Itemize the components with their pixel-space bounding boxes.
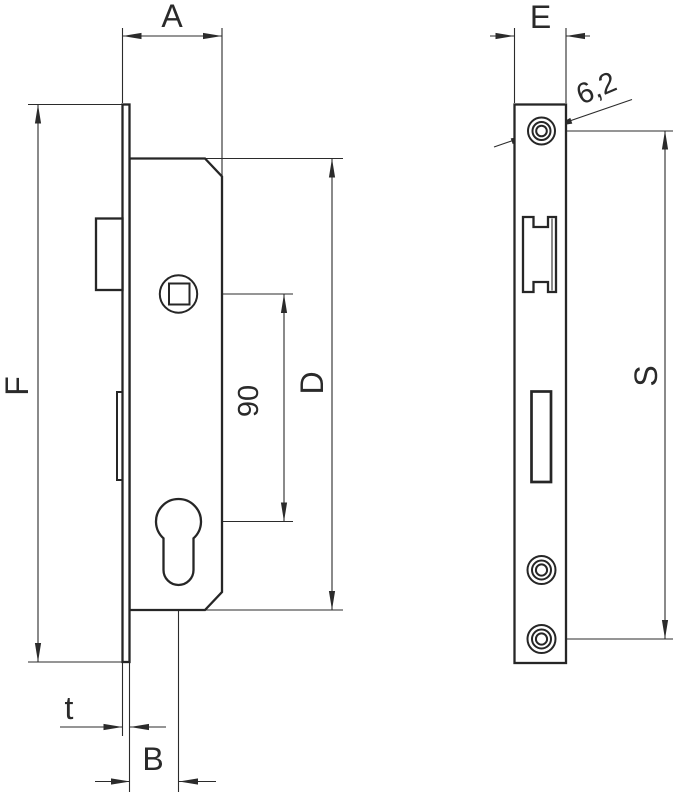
- arrow-90-bottom: [281, 503, 287, 522]
- dim-label-6-2: 6,2: [572, 66, 622, 111]
- arrow-S-top: [662, 131, 668, 150]
- dim-label-B: B: [142, 741, 163, 777]
- arrow-t-right: [130, 724, 149, 730]
- arrow-A-left: [123, 33, 142, 39]
- arrow-E-right: [566, 33, 585, 39]
- dim-label-D: D: [294, 371, 330, 394]
- arrow-t-left: [104, 724, 123, 730]
- latch-bolt-front: [523, 217, 556, 292]
- arrow-F-bottom: [35, 643, 41, 662]
- arrow-D-bottom: [329, 591, 335, 610]
- euro-cylinder-hole: [156, 499, 201, 585]
- dim-label-E: E: [530, 0, 551, 35]
- dim-label-S: S: [628, 365, 664, 386]
- latch-bolt-side: [96, 219, 123, 291]
- right-view-faceplate: [515, 105, 567, 664]
- deadbolt-slot: [532, 392, 552, 483]
- dim-label-F: F: [0, 376, 35, 396]
- arrow-B-left: [111, 778, 130, 784]
- dim-label-A: A: [161, 0, 183, 34]
- technical-drawing-page: A E F 90 D S t B 6,2: [0, 0, 675, 796]
- deadbolt-face-side: [117, 392, 123, 480]
- arrow-E-left: [496, 33, 515, 39]
- mortise-lock-drawing: A E F 90 D S t B 6,2: [0, 0, 675, 796]
- faceplate-outline: [123, 105, 130, 663]
- left-view-lock-body: [96, 105, 222, 663]
- arrow-A-right: [203, 33, 222, 39]
- dim-label-90: 90: [233, 385, 265, 417]
- arrow-F-top: [35, 105, 41, 124]
- arrow-B-right: [179, 778, 198, 784]
- dim-label-t: t: [65, 690, 74, 726]
- arrow-S-bottom: [662, 620, 668, 639]
- arrow-90-top: [281, 294, 287, 313]
- arrow-D-top: [329, 159, 335, 178]
